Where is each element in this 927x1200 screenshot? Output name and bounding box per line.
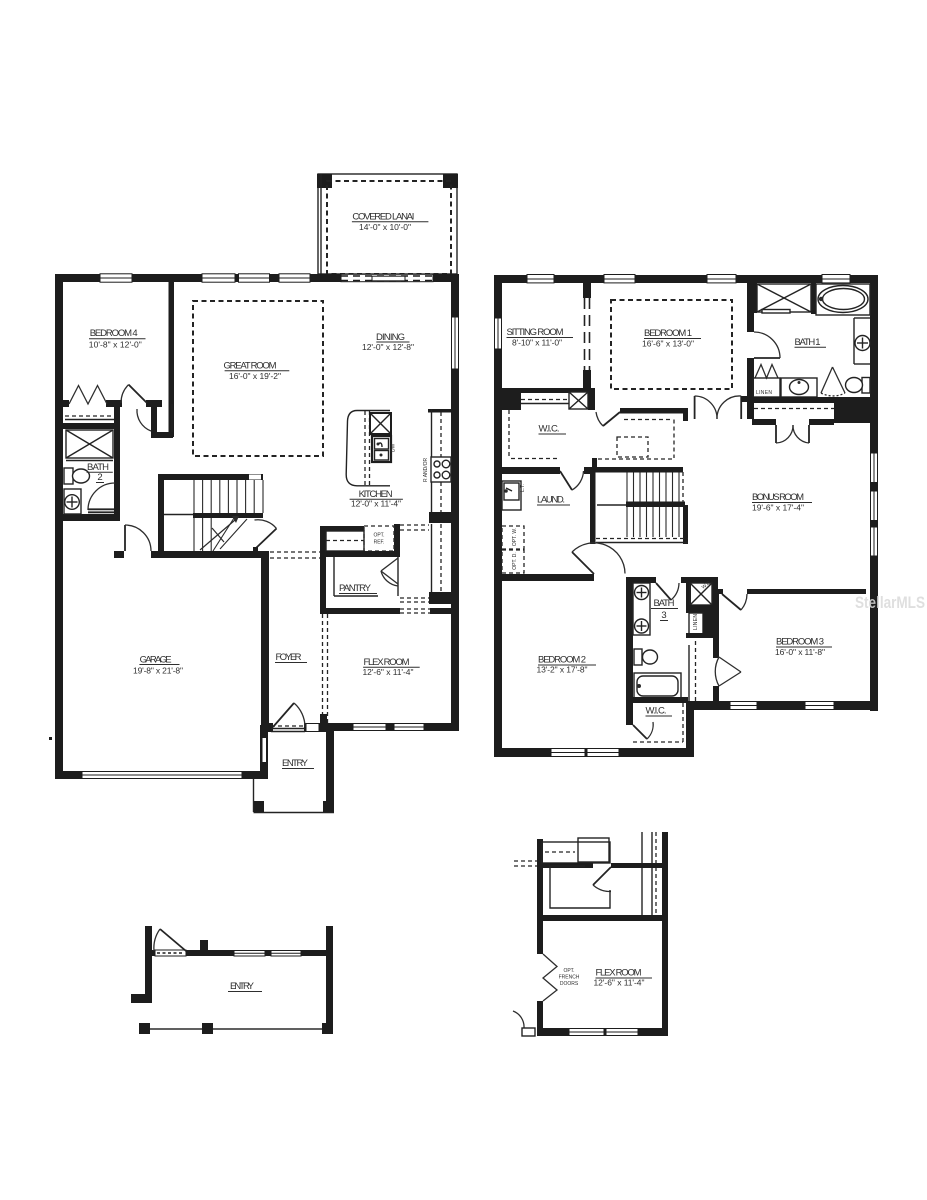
svg-text:LINEN: LINEN xyxy=(756,390,772,396)
svg-text:OPT. D.: OPT. D. xyxy=(512,552,518,570)
svg-text:PANTRY: PANTRY xyxy=(339,583,372,594)
svg-text:16'-0" x 11'-8": 16'-0" x 11'-8" xyxy=(775,647,825,657)
svg-text:OPT. W.: OPT. W. xyxy=(512,528,518,546)
svg-text:12'-0" x 11'-4": 12'-0" x 11'-4" xyxy=(351,499,401,509)
svg-text:16'-0" x 19'-2": 16'-0" x 19'-2" xyxy=(229,371,281,381)
svg-text:12'-6" x 11'-4": 12'-6" x 11'-4" xyxy=(594,978,645,988)
svg-text:SITTING ROOM: SITTING ROOM xyxy=(507,327,564,338)
svg-text:13'-2" x 17'-8": 13'-2" x 17'-8" xyxy=(537,665,588,675)
svg-text:REF.: REF. xyxy=(374,540,385,546)
svg-text:W.I.C.: W.I.C. xyxy=(646,706,667,717)
svg-text:DOORS: DOORS xyxy=(560,981,579,987)
svg-text:19'-8" x 21'-8": 19'-8" x 21'-8" xyxy=(133,666,183,676)
svg-text:10'-8" x 12'-0": 10'-8" x 12'-0" xyxy=(89,340,142,350)
svg-text:OPT.: OPT. xyxy=(373,533,384,539)
svg-text:BONUS ROOM: BONUS ROOM xyxy=(752,492,804,503)
svg-text:BATH: BATH xyxy=(654,598,675,609)
svg-text:BEDROOM 3: BEDROOM 3 xyxy=(776,637,824,648)
svg-text:12'-0" x 12'-8": 12'-0" x 12'-8" xyxy=(362,342,414,352)
svg-text:L.T.: L.T. xyxy=(520,484,526,492)
svg-text:LAUND.: LAUND. xyxy=(537,495,565,506)
svg-text:GARAGE: GARAGE xyxy=(140,655,172,666)
svg-text:19'-6" x 17'-4": 19'-6" x 17'-4" xyxy=(752,503,804,513)
svg-text:BATH 1: BATH 1 xyxy=(795,337,821,348)
svg-text:StellarMLS: StellarMLS xyxy=(855,594,925,612)
svg-text:3: 3 xyxy=(661,610,666,621)
svg-text:BEDROOM 1: BEDROOM 1 xyxy=(644,328,692,339)
svg-text:ENTRY: ENTRY xyxy=(282,758,309,769)
svg-text:FRENCH: FRENCH xyxy=(559,975,580,981)
svg-text:8'-10" x 11'-0": 8'-10" x 11'-0" xyxy=(512,338,562,348)
svg-text:BEDROOM 4: BEDROOM 4 xyxy=(90,328,138,339)
svg-text:FOYER: FOYER xyxy=(276,652,302,663)
svg-text:COVERED LANAI: COVERED LANAI xyxy=(352,212,414,223)
svg-text:16'-6" x 13'-0": 16'-6" x 13'-0" xyxy=(642,339,694,349)
svg-text:14'-0" x 10'-0": 14'-0" x 10'-0" xyxy=(359,222,411,232)
svg-text:DW: DW xyxy=(391,443,397,452)
svg-text:12'-6" x 11'-4": 12'-6" x 11'-4" xyxy=(363,667,414,677)
svg-text:OPT.: OPT. xyxy=(563,968,574,974)
svg-text:W.I.C.: W.I.C. xyxy=(539,424,560,435)
svg-text:LINEN: LINEN xyxy=(693,614,699,630)
svg-text:ENTRY: ENTRY xyxy=(230,981,255,992)
svg-text:2: 2 xyxy=(97,472,102,483)
svg-text:R AND/OR: R AND/OR xyxy=(423,457,429,482)
svg-text:GREAT ROOM: GREAT ROOM xyxy=(224,361,277,372)
